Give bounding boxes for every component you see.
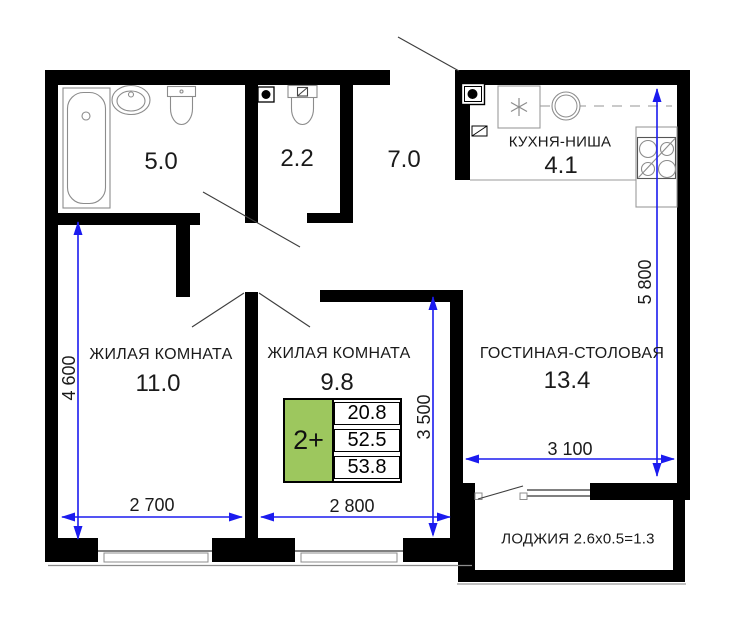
loggia-label: ЛОДЖИЯ 2.6x0.5=1.3 (501, 532, 654, 547)
window (527, 485, 590, 500)
vent-icon (462, 84, 485, 105)
living-dining-area: 13.4 (544, 369, 591, 393)
kitchen-niche-area: 4.1 (544, 154, 577, 178)
window-sill (301, 553, 397, 562)
toilet-icon (168, 87, 196, 125)
toilet-icon (288, 86, 317, 125)
wc-area: 2.2 (280, 147, 313, 171)
dim-living-dining-width: 3 100 (547, 440, 592, 458)
living-room-1-label: ЖИЛАЯ КОМНАТА (89, 347, 232, 363)
kitchen-niche-label: КУХНЯ-НИША (509, 135, 611, 150)
living-dining-label: ГОСТИНАЯ-СТОЛОВАЯ (480, 346, 664, 362)
washing-machine-icon (498, 86, 540, 128)
dim-living1-width: 2 700 (129, 496, 174, 514)
legend-row-total-area: 53.8 (334, 456, 400, 479)
dim-right-height: 5 800 (636, 259, 654, 304)
apartment-type-badge: 2+ (285, 400, 334, 481)
floor-plan: 5.0 2.2 7.0 КУХНЯ-НИША 4.1 ЖИЛАЯ КОМНАТА… (0, 0, 732, 629)
living-room-1-area: 11.0 (136, 372, 181, 396)
washbasin-icon (112, 86, 150, 115)
dim-living2-width: 2 800 (329, 497, 374, 515)
bathtub-icon (63, 88, 110, 208)
living1-door-swing (192, 293, 244, 327)
dim-left-height: 4 600 (60, 355, 78, 400)
living2-door-swing (259, 293, 310, 327)
bathroom-area: 5.0 (144, 150, 177, 174)
entrance-door-swing (398, 37, 459, 71)
hall-area: 7.0 (387, 148, 420, 172)
dim-living2-height: 3 500 (415, 394, 433, 439)
window-sill (104, 553, 208, 562)
apartment-legend: 2+ 20.8 52.5 53.8 (283, 398, 402, 483)
vent-icon (258, 87, 274, 102)
apartment-legend-rows: 20.8 52.5 53.8 (334, 400, 400, 481)
kitchen-sink-icon (552, 92, 580, 120)
legend-row-area: 52.5 (334, 429, 400, 452)
legend-row-living-area: 20.8 (334, 402, 400, 425)
living-room-2-area: 9.8 (320, 371, 353, 395)
living-room-2-label: ЖИЛАЯ КОМНАТА (267, 346, 410, 362)
electrical-panel-icon (472, 126, 487, 136)
